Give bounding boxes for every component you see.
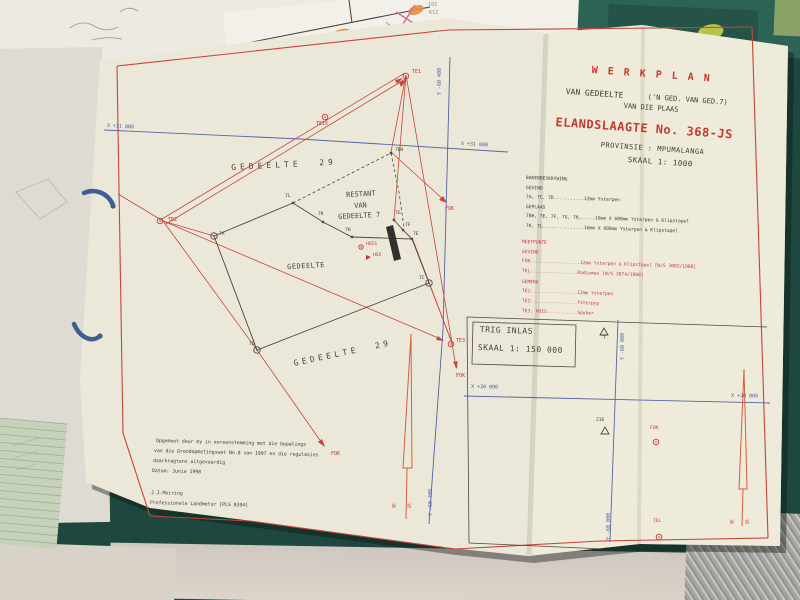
point-7k: 7K	[318, 213, 324, 218]
legend-meet-found-label: GEVIND	[522, 251, 539, 256]
grid-y-label-top: Y -60 400	[438, 68, 443, 95]
trig-beacon-216-label: 216	[596, 419, 604, 424]
trig-y-label-bottom: Y -60 000	[607, 513, 612, 540]
photo-of-werkplan-document: 102 K12 W E R K P L A N VAN GEDEELTE ('N…	[0, 0, 800, 600]
trig-x-label-right: X +30 000	[731, 394, 758, 399]
trig-x-label-left: X +30 000	[471, 385, 498, 390]
legend-placed-label: GEPLAAS	[526, 206, 546, 211]
north-label-trig: W N	[730, 520, 753, 526]
underlay-mark: 102	[428, 2, 437, 8]
point-7h: 7H	[345, 229, 351, 234]
point-7a: 7A	[219, 233, 225, 238]
point-7f: 7F	[405, 224, 411, 229]
station-huis: HUIS	[366, 243, 377, 248]
north-label-main: W N	[392, 504, 415, 510]
trig-y-label-top: Y -60 000	[621, 333, 626, 360]
legend-found-label: GEVIND	[526, 187, 543, 192]
grid-y-label-bottom: Y -60 400	[429, 489, 434, 516]
left-underlay-pencil-marks	[12, 179, 67, 470]
trig-tel-label: TEL	[653, 520, 661, 525]
station-te1: TE1	[412, 70, 421, 75]
station-hsx: HSX	[373, 254, 381, 259]
point-7e: 7E	[413, 233, 419, 238]
fok-label-bottomleft: FOK	[331, 452, 340, 457]
point-7l: 7L	[285, 195, 291, 200]
trig-fok-label: FOK	[650, 427, 658, 432]
point-7c: 7C	[419, 277, 425, 282]
fok-label-upper: FOK	[445, 207, 454, 212]
point-7g: 7G	[395, 212, 401, 217]
point-7bh: 7BH	[395, 149, 403, 154]
legend-marked-label: GEMERK	[522, 281, 539, 286]
station-te1x: TE1X	[316, 122, 328, 127]
plan-artwork	[0, 0, 800, 600]
fok-label-lower: FOK	[456, 374, 465, 379]
trig-beacon-7-label: 7	[603, 337, 606, 342]
restant-line2: VAN	[354, 202, 367, 210]
station-te2: TE2	[168, 218, 177, 223]
underlay-mark: K12	[429, 10, 438, 16]
point-7d: 7D	[249, 343, 255, 348]
legend-meetpunte-title: MEETPUNTE	[522, 241, 547, 246]
surveyor-name: J.J.Meiring	[151, 492, 183, 498]
station-te3: TE3	[456, 339, 465, 344]
